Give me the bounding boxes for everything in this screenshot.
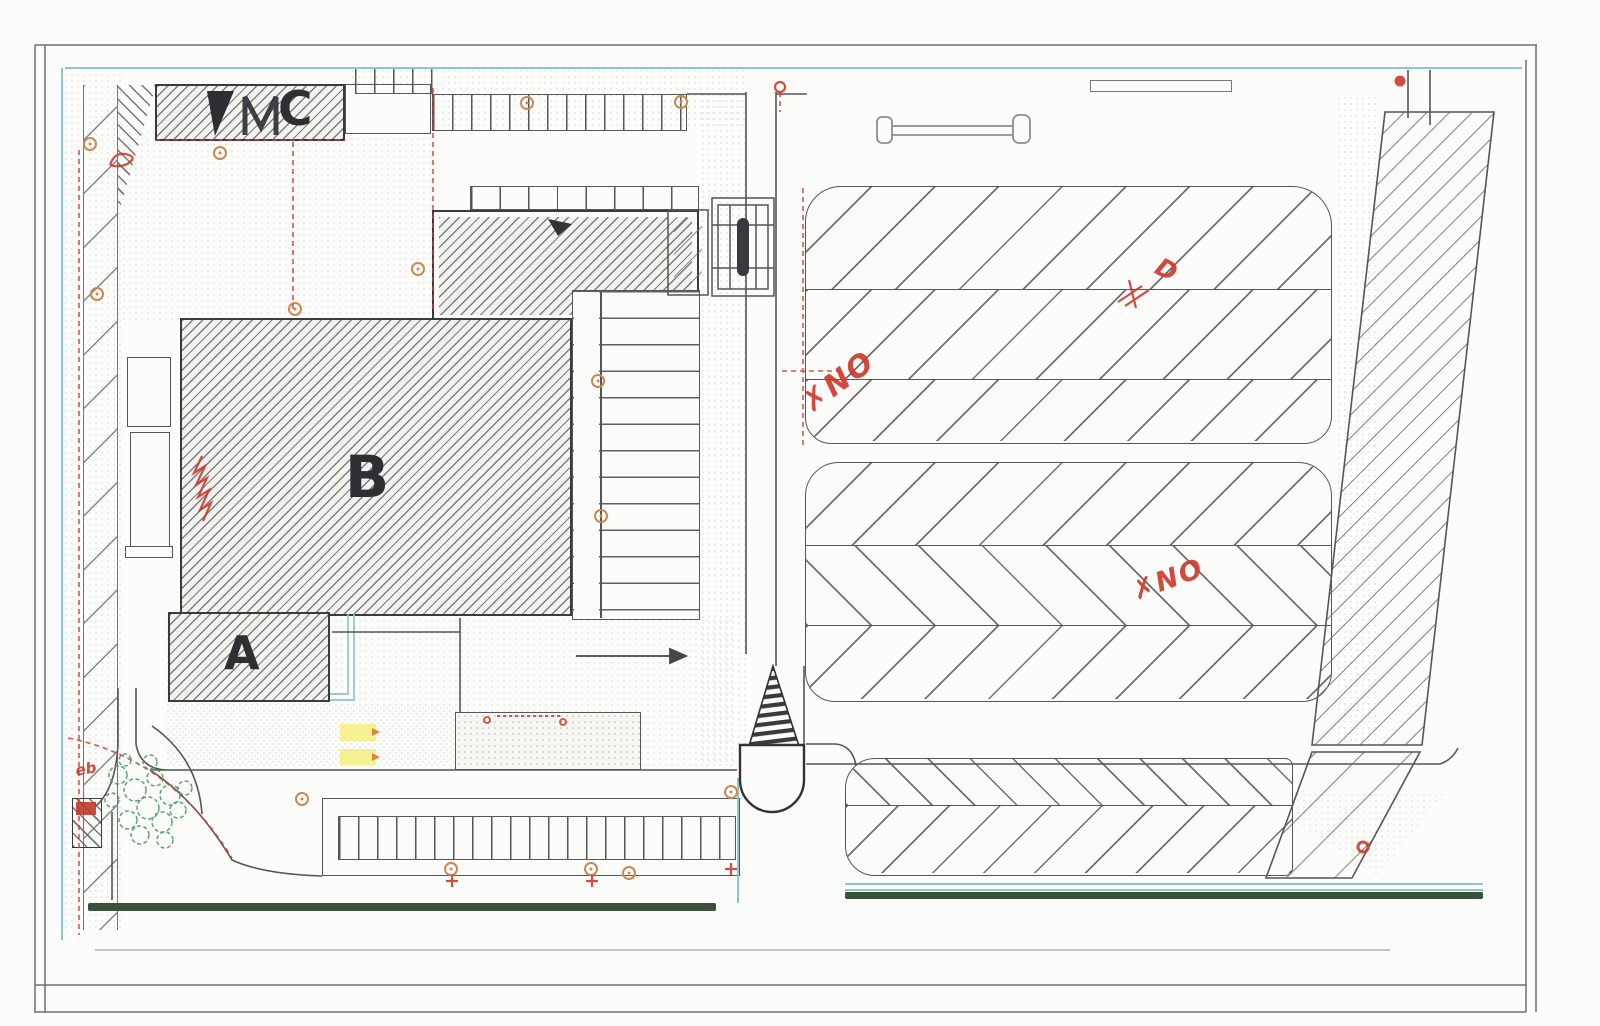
parking-row	[806, 187, 1331, 289]
building-a-label: A	[224, 630, 260, 676]
sidewalk-stipple-east	[1336, 95, 1380, 743]
sidewalk-stipple-nw	[115, 130, 435, 320]
parking-row	[806, 463, 1331, 545]
barbell-island	[877, 115, 1030, 143]
stall-row-mid	[455, 712, 641, 770]
red-plus-mark	[446, 875, 458, 887]
stall-strip-bottom	[338, 816, 736, 860]
building-c	[155, 84, 345, 141]
building-b-label: B	[345, 448, 389, 506]
stall-bar-top-right	[1090, 80, 1232, 92]
crosswalk-highlight-2	[340, 749, 376, 765]
parking-row	[806, 289, 1331, 379]
stall-row-top-partial	[355, 68, 433, 94]
parking-block-south	[845, 758, 1293, 876]
shield-base	[740, 745, 804, 812]
parking-row	[846, 759, 1292, 805]
parking-block-north	[805, 186, 1332, 444]
building-c-label: C	[278, 86, 313, 133]
parking-row	[806, 545, 1331, 625]
west-pad-2	[130, 432, 170, 558]
site-plan-sheet: C B A	[0, 0, 1600, 1026]
parking-row	[806, 625, 1331, 699]
landscape-stipple-se	[1295, 792, 1445, 876]
west-pad-1	[127, 357, 171, 427]
hedge-strips	[88, 892, 1483, 911]
dock-aisle-mask	[574, 292, 599, 618]
roof-cell-row	[470, 186, 699, 210]
sidewalk-stipple-below-a	[168, 705, 458, 765]
striped-cone	[749, 666, 799, 746]
sign-pad	[72, 798, 102, 848]
red-circle-road	[775, 82, 785, 92]
stall-row-top	[432, 94, 687, 131]
red-note-planter: eb	[74, 758, 98, 779]
red-plus-mark	[586, 875, 598, 887]
parking-block-middle	[805, 462, 1332, 702]
dock-aisle-line	[600, 292, 602, 618]
parking-row	[846, 805, 1292, 873]
monument-island	[740, 666, 804, 812]
red-blob-ne	[1395, 76, 1406, 87]
west-pad-bar	[125, 546, 173, 558]
sidewalk-stipple-road-edge	[700, 92, 746, 764]
parking-row	[806, 379, 1331, 441]
crosswalk-highlight-1	[340, 724, 376, 741]
